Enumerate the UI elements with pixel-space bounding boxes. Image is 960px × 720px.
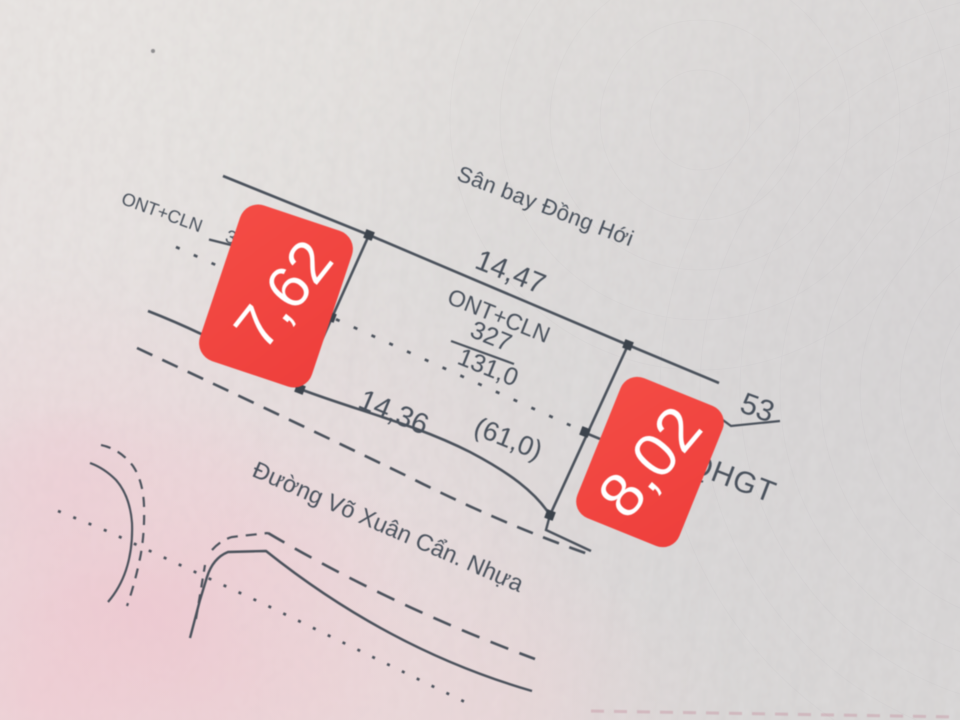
svg-text:14,47: 14,47	[471, 244, 550, 301]
svg-text:53: 53	[736, 387, 779, 429]
svg-text:14,36: 14,36	[354, 384, 433, 442]
svg-text:Đường Võ Xuân Cẩn. Nhựa: Đường Võ Xuân Cẩn. Nhựa	[249, 456, 528, 597]
svg-text:Sân bay Đồng Hới: Sân bay Đồng Hới	[454, 161, 638, 251]
svg-text:ONT+CLN: ONT+CLN	[119, 189, 205, 237]
